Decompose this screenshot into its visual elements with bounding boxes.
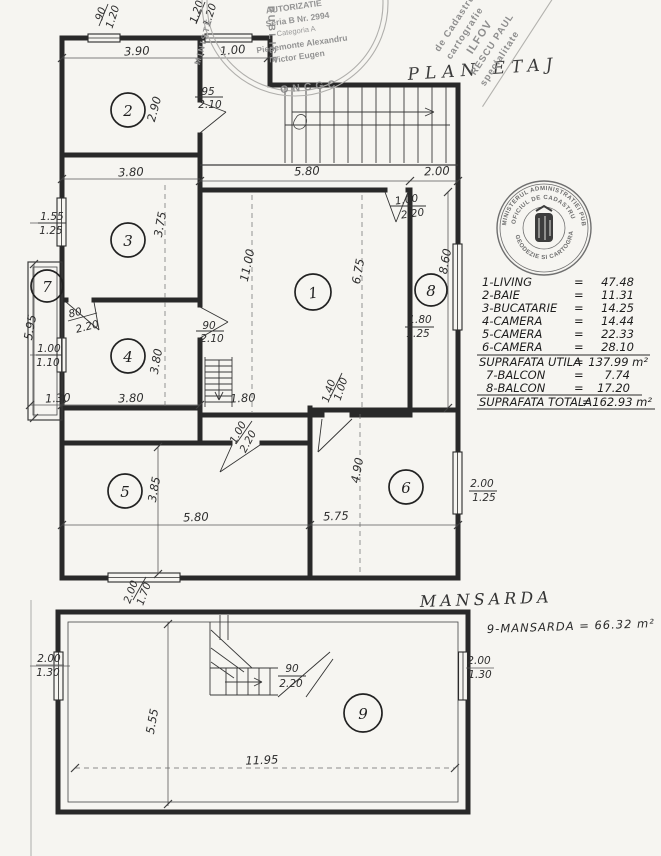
dim-window6-height: 1.25 <box>472 492 496 504</box>
etaj-dimension-labels: 90 1.20 1.20 1.20 3.90 1.00 95 2.10 2.90… <box>21 0 496 607</box>
dim-door2-width: 95 <box>201 86 215 98</box>
svg-text:3: 3 <box>123 232 133 250</box>
dim-mansarda-door-height: 2.20 <box>279 678 303 690</box>
svg-text:47.48: 47.48 <box>601 275 634 289</box>
svg-text:=: = <box>574 355 584 369</box>
svg-text:1-LIVING: 1-LIVING <box>482 275 532 289</box>
svg-text:=: = <box>574 327 584 341</box>
legend-row-5: 5-CAMERA=22.33 <box>482 327 634 341</box>
dim-window4-width: 1.00 <box>37 343 61 355</box>
mansarda-title: MANSARDA <box>418 587 552 611</box>
svg-text:8-BALCON: 8-BALCON <box>486 381 546 395</box>
room-marker-7: 7 <box>31 270 63 302</box>
mansarda-area-note: 9-MANSARDA = 66.32 m² <box>487 616 655 636</box>
room-marker-2: 2 <box>111 93 145 127</box>
dim-door4b-width: 90 <box>202 320 216 332</box>
svg-text:1: 1 <box>307 283 319 302</box>
svg-text:5-CAMERA: 5-CAMERA <box>482 327 543 341</box>
svg-text:14.44: 14.44 <box>601 314 634 328</box>
dim-window3-height: 1.25 <box>39 225 63 237</box>
main-staircase <box>285 87 450 163</box>
etaj-dimension-lines <box>26 54 462 578</box>
dim-living-width: 5.80 <box>294 164 320 179</box>
svg-text:=: = <box>574 301 584 315</box>
svg-text:7.74: 7.74 <box>604 368 630 382</box>
dim-balcony7-length: 5.95 <box>21 313 39 341</box>
dim-room2-width: 3.90 <box>124 43 150 58</box>
dim-mansarda-window-left-height: 1.30 <box>36 667 60 679</box>
dim-opening6-height: 1.00 <box>332 376 351 402</box>
svg-text:=: = <box>574 275 584 289</box>
svg-text:22.33: 22.33 <box>601 327 634 341</box>
dim-door4a-width: 80 <box>67 306 83 321</box>
stamp-emblem <box>535 206 553 242</box>
dim-balcony7-width: 1.30 <box>45 390 71 405</box>
mansarda-room-marker-9: 9 <box>344 694 382 732</box>
dim-door2-height: 2.10 <box>198 99 222 111</box>
room-marker-4: 4 <box>111 339 145 373</box>
room-marker-6: 6 <box>389 470 423 504</box>
dim-vestibule-window: 1.00 <box>219 42 246 58</box>
mansarda-walls <box>58 612 468 812</box>
mansarda-staircase <box>210 615 333 697</box>
svg-text:SUPRAFATA UTILA: SUPRAFATA UTILA <box>479 355 581 369</box>
legend-row-4: 4-CAMERA=14.44 <box>482 314 634 328</box>
dim-mansarda-window-right-height: 1.30 <box>468 669 492 681</box>
room-marker-5: 5 <box>108 474 142 508</box>
dim-balcon8-length: 8.60 <box>436 247 454 275</box>
svg-text:6-CAMERA: 6-CAMERA <box>482 340 543 354</box>
dim-window8-width: 1.80 <box>408 314 432 326</box>
svg-text:=: = <box>574 314 584 328</box>
dim-living-depth: 11.00 <box>237 248 258 283</box>
stair-direction-arrow <box>292 108 434 116</box>
dim-room6-width: 5.75 <box>323 509 349 524</box>
dim-door1-height: 2.20 <box>400 206 425 221</box>
svg-text:162.93 m²: 162.93 m² <box>592 395 652 409</box>
svg-text:4-CAMERA: 4-CAMERA <box>482 314 543 328</box>
svg-text:=: = <box>574 381 584 395</box>
dim-ticks <box>26 54 462 578</box>
svg-text:28.10: 28.10 <box>601 340 634 354</box>
svg-text:17.20: 17.20 <box>597 381 630 395</box>
dim-room3-depth: 3.75 <box>151 210 169 238</box>
dim-mansarda-window-left-width: 2.00 <box>37 653 61 665</box>
mansarda-plan: MANSARDA 9-MANSARDA = 66.32 m² 2.00 1.30… <box>30 587 655 856</box>
dim-room6-depth: 4.90 <box>348 456 366 484</box>
svg-text:14.25: 14.25 <box>601 301 634 315</box>
mansarda-dimension-labels: 2.00 1.30 90 2.20 5.55 11.95 2.00 1.30 <box>36 653 492 768</box>
dim-mansarda-width: 11.95 <box>245 752 278 767</box>
svg-text:11.31: 11.31 <box>601 288 634 302</box>
dim-room3-width: 3.80 <box>118 165 144 180</box>
dim-door4b-height: 2.10 <box>200 333 224 345</box>
dim-window6-width: 2.00 <box>470 478 494 490</box>
legend-row-3: 3-BUCATARIE=14.25 <box>482 301 634 315</box>
svg-text:5: 5 <box>120 483 130 501</box>
svg-text:2-BAIE: 2-BAIE <box>482 288 521 302</box>
svg-text:=: = <box>574 288 584 302</box>
room-marker-8: 8 <box>415 274 447 306</box>
dim-door1-width: 1.00 <box>394 192 419 207</box>
room-marker-3: 3 <box>111 223 145 257</box>
dim-living-inner: 6.75 <box>349 257 367 285</box>
svg-text:3-BUCATARIE: 3-BUCATARIE <box>482 301 558 315</box>
legend-balcon8-row: 8-BALCON=17.20 <box>486 381 630 395</box>
service-staircase <box>205 357 232 407</box>
dim-door4a-height: 2.20 <box>74 318 100 335</box>
stamp-auth-agency: ONCGC <box>280 78 340 96</box>
room-marker-1: 1 <box>295 274 331 310</box>
floor-plan-drawing: 90 1.20 1.20 1.20 3.90 1.00 95 2.10 2.90… <box>0 0 661 856</box>
dim-window4-height: 1.10 <box>36 357 60 369</box>
dim-mansarda-door-width: 90 <box>285 663 299 675</box>
mansarda-stair-arrow <box>225 678 262 686</box>
mansarda-dimension-lines <box>30 620 494 808</box>
etaj-windows <box>57 34 462 582</box>
dim-room5-width: 5.80 <box>183 510 209 525</box>
legend-row-2: 2-BAIE=11.31 <box>482 288 634 302</box>
legend-utila-row: SUPRAFATA UTILA=137.99 m² <box>479 355 648 369</box>
svg-text:=: = <box>574 368 584 382</box>
dim-balcon8-width: 2.00 <box>424 164 450 179</box>
legend-totala-row: SUPRAFATA TOTALA=162.93 m² <box>479 395 652 409</box>
stamp-ring-right-text: PUBLICE <box>265 6 278 66</box>
stair-scribble <box>294 114 307 129</box>
svg-text:6: 6 <box>401 479 411 497</box>
dim-mansarda-window-right-width: 2.00 <box>467 655 491 667</box>
dim-room2-depth: 2.90 <box>144 95 164 123</box>
svg-text:7-BALCON: 7-BALCON <box>486 368 546 382</box>
dim-window3-width: 1.55 <box>40 211 64 223</box>
dim-hall-opening: 1.80 <box>230 390 256 405</box>
dim-room4-width: 3.80 <box>118 391 144 406</box>
svg-text:2: 2 <box>122 102 133 120</box>
svg-text:7: 7 <box>42 278 52 296</box>
dim-mansarda-depth: 5.55 <box>143 707 161 735</box>
svg-text:=: = <box>582 395 592 409</box>
area-legend: 1-LIVING=47.48 2-BAIE=11.31 3-BUCATARIE=… <box>477 275 655 409</box>
svg-text:=: = <box>574 340 584 354</box>
dim-window8-height: 1.25 <box>406 328 430 340</box>
legend-row-1: 1-LIVING=47.48 <box>482 275 634 289</box>
mansarda-windows <box>54 652 468 700</box>
legend-balcon7-row: 7-BALCON=7.74 <box>486 368 630 382</box>
svg-text:4: 4 <box>122 348 133 366</box>
dim-room4-depth: 3.80 <box>147 347 165 375</box>
dim-room5-depth: 3.85 <box>145 475 163 503</box>
diagonal-cadastru-stamp: de Cadastru cartografie ILFOV RESCU PAUL… <box>412 0 560 107</box>
svg-text:9: 9 <box>358 705 368 723</box>
svg-text:8: 8 <box>426 282 436 300</box>
scanned-floor-plan-page: 90 1.20 1.20 1.20 3.90 1.00 95 2.10 2.90… <box>0 0 661 856</box>
legend-row-6: 6-CAMERA=28.10 <box>482 340 634 354</box>
svg-text:137.99 m²: 137.99 m² <box>588 355 648 369</box>
svg-text:SUPRAFATA TOTALA: SUPRAFATA TOTALA <box>479 395 592 409</box>
